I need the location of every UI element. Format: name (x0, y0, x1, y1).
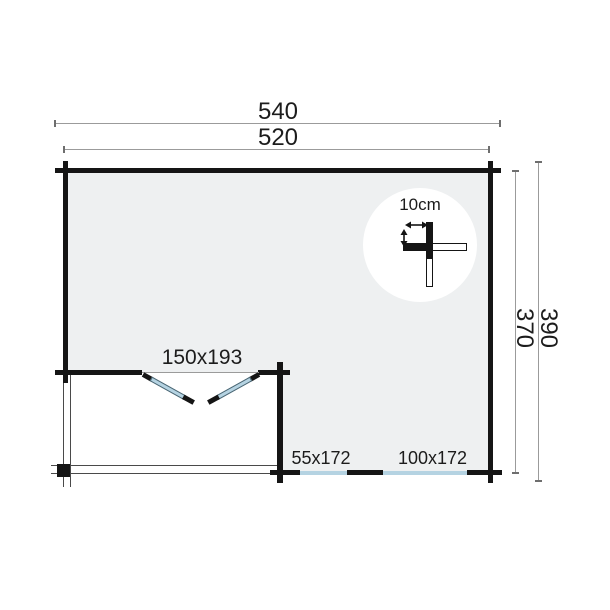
dimension-tick (512, 472, 519, 474)
wall-right (488, 161, 493, 483)
window-55x172 (300, 471, 347, 475)
dimension-label-outer-depth: 390 (536, 288, 560, 368)
wall-bottom-segment (270, 470, 300, 475)
door-size-label: 150x193 (142, 347, 262, 368)
dimension-label-outer-width: 540 (228, 100, 328, 124)
dimension-label-inner-depth: 370 (512, 288, 536, 368)
log-corner-cross-icon (432, 243, 467, 251)
terrace-edge (51, 465, 277, 474)
door-opening-line (142, 372, 259, 373)
terrace-corner-post (57, 464, 70, 477)
floor-plan: 540 520 370 390 10cm (0, 0, 610, 610)
window-size-label: 100x172 (381, 449, 484, 467)
interior-wall-left-segment (55, 370, 142, 375)
wall-bottom-segment (467, 470, 502, 475)
wall-left (63, 161, 68, 383)
dimension-tick (512, 170, 519, 172)
dimension-tick (63, 146, 65, 153)
window-100x172 (383, 471, 467, 475)
dimension-tick (535, 480, 542, 482)
dimension-tick (488, 146, 490, 153)
interior-wall-right-segment (258, 370, 290, 375)
dimension-tick (499, 120, 501, 127)
wall-thickness-label: 10cm (380, 196, 460, 214)
dimension-label-inner-width: 520 (228, 126, 328, 150)
log-corner-cross-icon (426, 258, 433, 287)
wall-top (55, 168, 501, 173)
wall-bottom-segment (347, 470, 383, 475)
dimension-tick (54, 120, 56, 127)
window-size-label: 55x172 (271, 449, 371, 467)
measure-arrows-icon (396, 216, 436, 252)
dimension-tick (535, 161, 542, 163)
